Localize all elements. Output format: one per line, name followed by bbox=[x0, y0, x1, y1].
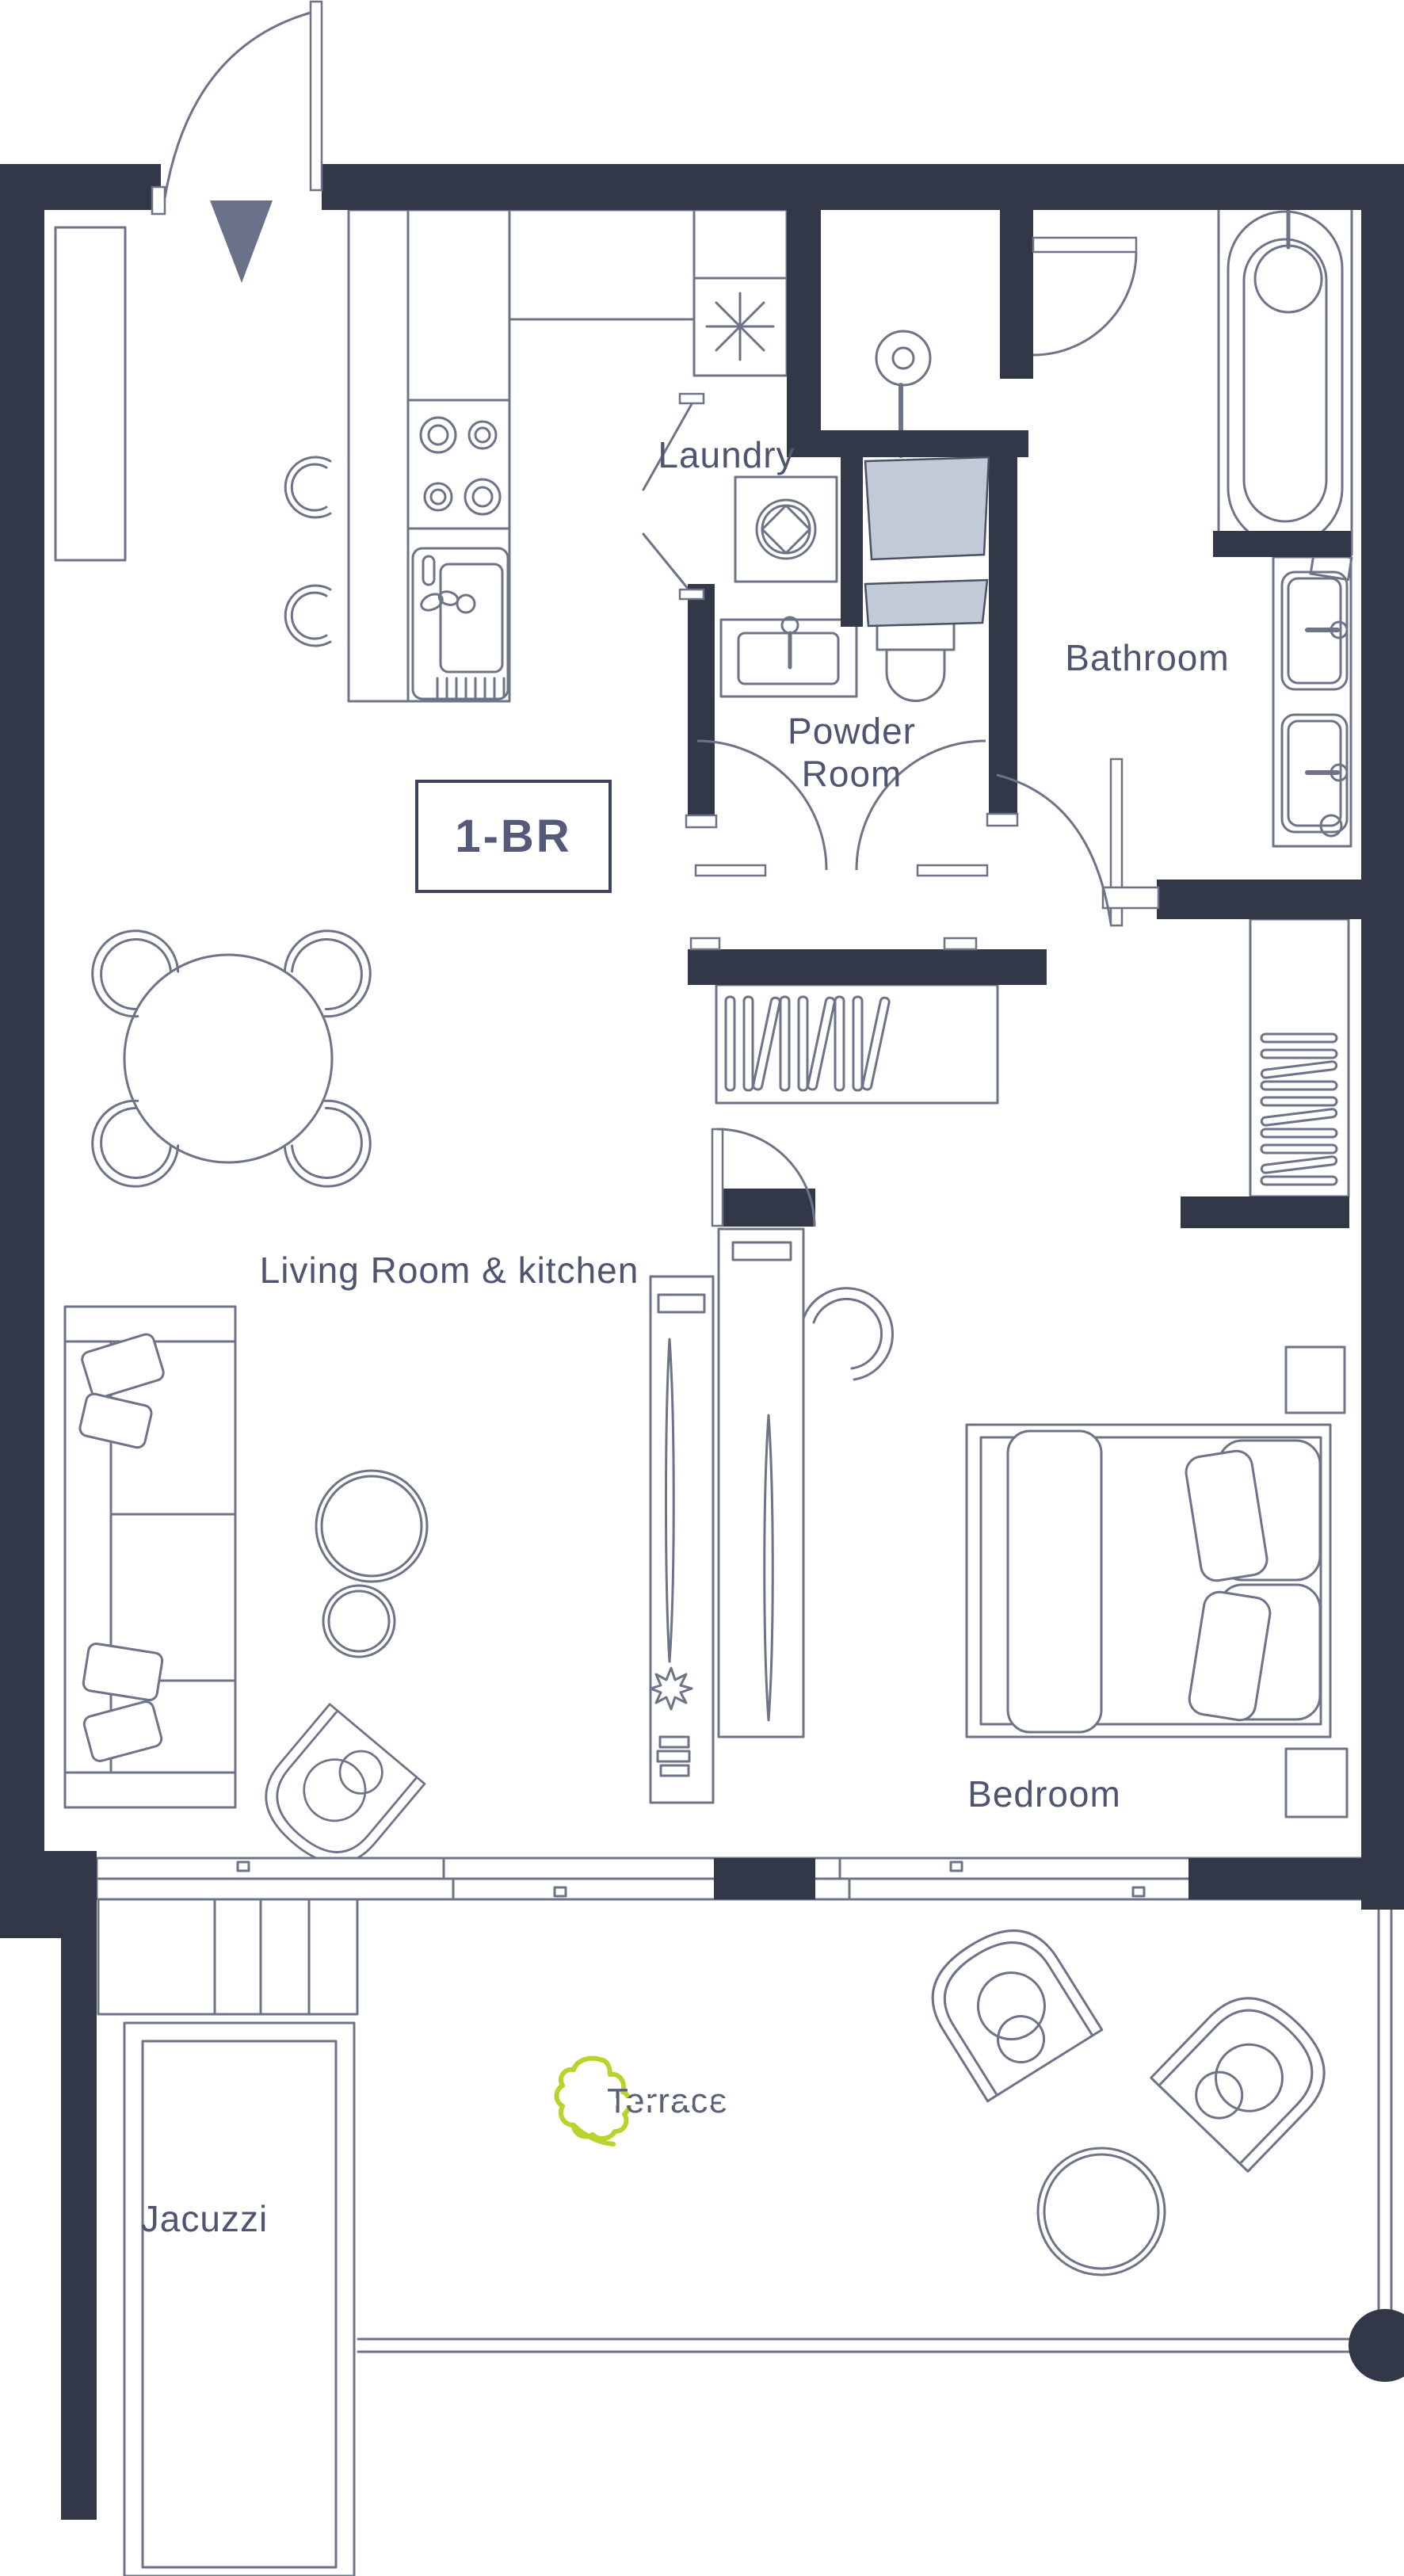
entry-door-swing bbox=[165, 13, 311, 198]
swivel-chair bbox=[803, 1288, 893, 1380]
room-label-laundry: Laundry bbox=[658, 433, 795, 476]
floor-plan-drawing bbox=[0, 0, 1404, 2576]
room-label-jacuzzi: Jacuzzi bbox=[141, 2197, 268, 2240]
unit-type-label: 1-BR bbox=[455, 810, 571, 863]
railing bbox=[358, 1910, 1391, 2352]
powder-door-leaf-left bbox=[696, 865, 765, 876]
sofa bbox=[65, 1307, 235, 1807]
powder-sink bbox=[721, 617, 857, 696]
lounge-chairs bbox=[913, 1910, 1345, 2172]
laundry-niche bbox=[643, 403, 692, 594]
armchair bbox=[246, 1704, 425, 1883]
room-label-bedroom: Bedroom bbox=[967, 1773, 1121, 1815]
nightstands bbox=[1286, 1347, 1347, 1817]
laundry-washer bbox=[735, 477, 837, 582]
shower-room-door-leaf bbox=[1033, 238, 1136, 252]
bathroom-pocket-door-leaf bbox=[1103, 887, 1158, 908]
entry-arrow-icon bbox=[210, 200, 273, 283]
toilet bbox=[877, 621, 954, 700]
glass-partitions bbox=[865, 457, 989, 626]
dining-chairs bbox=[74, 913, 387, 1204]
left-closet bbox=[55, 227, 125, 560]
tv-console-living bbox=[650, 1277, 713, 1803]
bar-stools bbox=[285, 457, 330, 646]
terrace-table bbox=[1038, 2148, 1165, 2275]
entry-door-leaf bbox=[311, 2, 322, 190]
railing-corner-post bbox=[1349, 2309, 1404, 2382]
room-label-powder-room: Powder Room bbox=[761, 710, 943, 796]
ceiling-light bbox=[694, 210, 787, 376]
floor-plan: Laundry Powder Room Bathroom Living Room… bbox=[0, 0, 1404, 2576]
coffee-tables bbox=[316, 1471, 427, 1657]
stove bbox=[408, 400, 509, 529]
terrace-steps bbox=[98, 1899, 357, 2014]
powder-door-leaf-right bbox=[918, 865, 987, 876]
dining-table bbox=[124, 955, 332, 1162]
tv-console-bedroom bbox=[719, 1229, 803, 1737]
terrace-hidden-line bbox=[588, 2098, 746, 2105]
room-label-bathroom: Bathroom bbox=[1065, 636, 1229, 679]
bathtub bbox=[1219, 199, 1352, 555]
hall-closet bbox=[716, 985, 998, 1103]
unit-type-badge: 1-BR bbox=[415, 780, 612, 893]
room-label-living-kitchen: Living Room & kitchen bbox=[260, 1249, 639, 1292]
kitchen-sink bbox=[413, 548, 508, 699]
bed bbox=[967, 1425, 1330, 1737]
hall-door-leaf bbox=[712, 1129, 723, 1226]
bedroom-wardrobe bbox=[1250, 919, 1349, 1196]
double-vanity bbox=[1273, 551, 1352, 846]
kitchen-island bbox=[349, 210, 694, 701]
jacuzzi-pool bbox=[124, 2023, 354, 2576]
